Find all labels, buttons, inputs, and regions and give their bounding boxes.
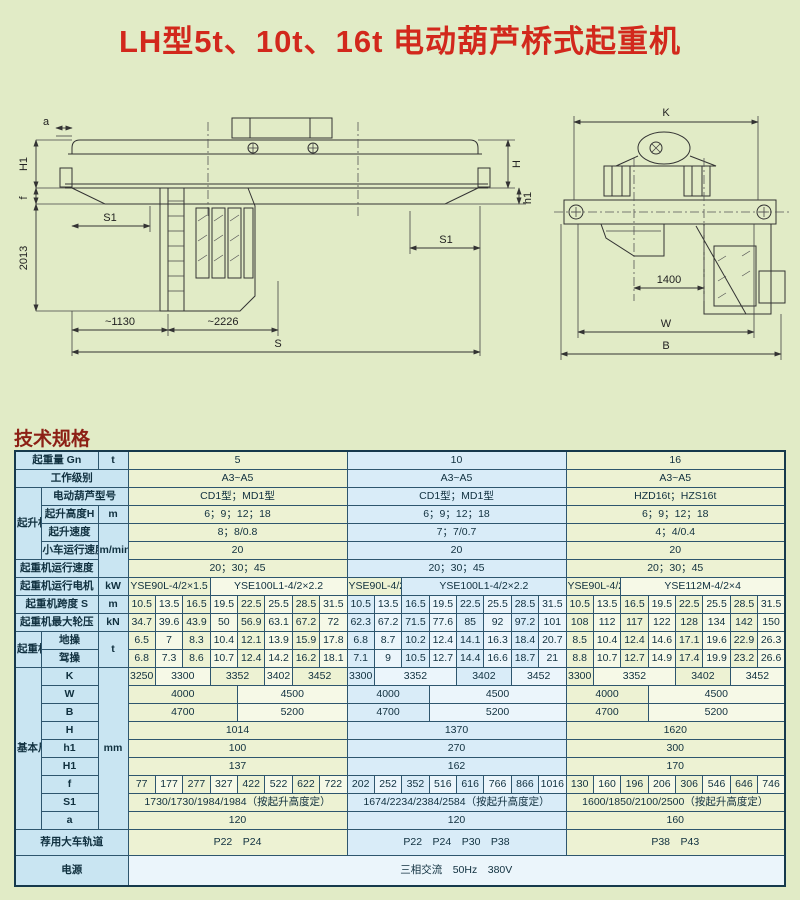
- spec-cell: 16.2: [292, 650, 319, 668]
- spec-cell: 12.1: [238, 632, 265, 650]
- spec-row: a120120160: [15, 812, 785, 830]
- spec-cell: 130: [566, 776, 593, 794]
- spec-cell: 10.5: [402, 650, 429, 668]
- spec-cell: 23.2: [730, 650, 757, 668]
- spec-cell: 20: [128, 542, 347, 560]
- spec-cell: 8.3: [183, 632, 210, 650]
- spec-cell: 327: [210, 776, 237, 794]
- spec-cell: 起升速度: [41, 524, 98, 542]
- spec-row: B470052004700520047005200: [15, 704, 785, 722]
- spec-cell: 10: [347, 451, 566, 470]
- spec-cell: 16.6: [484, 650, 511, 668]
- spec-cell: 101: [539, 614, 566, 632]
- spec-cell: 170: [566, 758, 785, 776]
- spec-cell: 16.5: [621, 596, 648, 614]
- spec-cell: 3300: [155, 668, 210, 686]
- spec-cell: 4700: [566, 704, 648, 722]
- spec-row: 起重机跨度 Sm10.513.516.519.522.525.528.531.5…: [15, 596, 785, 614]
- spec-cell: 20；30；45: [128, 560, 347, 578]
- spec-cell: 3452: [292, 668, 347, 686]
- spec-cell: 3452: [511, 668, 566, 686]
- spec-cell: 12.4: [429, 632, 456, 650]
- spec-cell: 5200: [648, 704, 785, 722]
- spec-cell: 19.9: [703, 650, 730, 668]
- spec-table: 起重量 Gnt51016工作级别A3~A5A3~A5A3~A5起升机构电动葫芦型…: [14, 450, 786, 887]
- spec-cell: 19.5: [210, 596, 237, 614]
- spec-row: 起重机运行速度20；30；4520；30；4520；30；45: [15, 560, 785, 578]
- spec-cell: 13.5: [155, 596, 182, 614]
- dimension-lines: a H1 f 2013 S1 ~1130 ~2226 S H h1 S1: [18, 116, 534, 356]
- spec-cell: 电源: [15, 856, 128, 887]
- spec-cell: 地操: [41, 632, 98, 650]
- spec-cell: 电动葫芦型号: [41, 488, 128, 506]
- spec-cell: t: [98, 451, 128, 470]
- spec-cell: 4700: [128, 704, 238, 722]
- dim-label-2226: ~2226: [208, 316, 239, 328]
- dim-label-K: K: [662, 107, 670, 119]
- spec-row: 驾操6.87.38.610.712.414.216.218.17.1910.51…: [15, 650, 785, 668]
- spec-cell: 22.5: [676, 596, 703, 614]
- spec-cell: 1600/1850/2100/2500（按起升高度定）: [566, 794, 785, 812]
- spec-cell: 14.4: [457, 650, 484, 668]
- spec-cell: 7: [155, 632, 182, 650]
- spec-cell: 10.5: [347, 596, 374, 614]
- spec-cell: 43.9: [183, 614, 210, 632]
- spec-cell: 766: [484, 776, 511, 794]
- spec-cell: 6；9；12；18: [347, 506, 566, 524]
- spec-cell: 12.7: [621, 650, 648, 668]
- cab-and-ladder: [160, 188, 255, 311]
- spec-cell: YSE100L1-4/2×2.2: [402, 578, 566, 596]
- spec-cell: 150: [758, 614, 785, 632]
- spec-cell: 63.1: [265, 614, 292, 632]
- spec-cell: 起重机运行电机: [15, 578, 98, 596]
- spec-cell: 7；7/0.7: [347, 524, 566, 542]
- crane-end-view-drawing: K 1400 W B: [546, 96, 800, 374]
- spec-cell: 160: [566, 812, 785, 830]
- spec-cell: 28.5: [511, 596, 538, 614]
- dim-label-S1-right: S1: [439, 234, 452, 246]
- spec-cell: 3402: [457, 668, 512, 686]
- dimension-lines: K 1400 W B: [561, 107, 781, 360]
- spec-cell: 18.4: [511, 632, 538, 650]
- spec-cell: a: [41, 812, 98, 830]
- spec-cell: 14.6: [648, 632, 675, 650]
- spec-cell: 6；9；12；18: [128, 506, 347, 524]
- spec-cell: 3300: [566, 668, 593, 686]
- spec-cell: H1: [41, 758, 98, 776]
- spec-row: 起升速度m/min8；8/0.87；7/0.74；4/0.4: [15, 524, 785, 542]
- spec-cell: 8.8: [566, 650, 593, 668]
- spec-cell: P22 P24: [128, 830, 347, 856]
- spec-cell: f: [41, 776, 98, 794]
- spec-cell: 516: [429, 776, 456, 794]
- spec-cell: 20；30；45: [566, 560, 785, 578]
- spec-cell: 8；8/0.8: [128, 524, 347, 542]
- spec-cell: 252: [374, 776, 401, 794]
- spec-cell: W: [41, 686, 98, 704]
- spec-row: 起重机运行电机kWYSE90L-4/2×1.5YSE100L1-4/2×2.2Y…: [15, 578, 785, 596]
- spec-cell: K: [41, 668, 98, 686]
- spec-cell: 39.6: [155, 614, 182, 632]
- spec-cell: 3452: [730, 668, 785, 686]
- spec-row: h1100270300: [15, 740, 785, 758]
- spec-cell: 12.4: [621, 632, 648, 650]
- spec-cell: 3352: [593, 668, 675, 686]
- spec-cell: A3~A5: [128, 470, 347, 488]
- spec-cell: 6.8: [347, 632, 374, 650]
- spec-cell: 31.5: [758, 596, 785, 614]
- spec-cell: 300: [566, 740, 785, 758]
- spec-cell: 1730/1730/1984/1984（按起升高度定）: [128, 794, 347, 812]
- spec-cell: 10.5: [566, 596, 593, 614]
- spec-cell: 72: [320, 614, 347, 632]
- spec-table-body: 起重量 Gnt51016工作级别A3~A5A3~A5A3~A5起升机构电动葫芦型…: [15, 451, 785, 886]
- spec-cell: t: [98, 632, 128, 668]
- spec-cell: 14.1: [457, 632, 484, 650]
- spec-cell: 25.5: [484, 596, 511, 614]
- spec-cell: P38 P43: [566, 830, 785, 856]
- spec-cell: 起重量 Gn: [15, 451, 98, 470]
- spec-cell: kN: [98, 614, 128, 632]
- spec-cell: 746: [758, 776, 785, 794]
- spec-cell: 100: [128, 740, 347, 758]
- spec-cell: 荐用大车轨道: [15, 830, 128, 856]
- spec-row: 荐用大车轨道P22 P24P22 P24 P30 P38P38 P43: [15, 830, 785, 856]
- spec-cell: kW: [98, 578, 128, 596]
- spec-cell: 13.9: [265, 632, 292, 650]
- spec-cell: 10.5: [128, 596, 155, 614]
- spec-cell: 6.8: [128, 650, 155, 668]
- spec-cell: 177: [155, 776, 182, 794]
- spec-cell: 10.7: [593, 650, 620, 668]
- spec-cell: P22 P24 P30 P38: [347, 830, 566, 856]
- spec-cell: 62.3: [347, 614, 374, 632]
- spec-cell: mm: [98, 668, 128, 830]
- spec-row: H1137162170: [15, 758, 785, 776]
- dim-label-B: B: [662, 340, 669, 352]
- trolley-hoist: [224, 118, 340, 153]
- spec-cell: H: [41, 722, 98, 740]
- page-title: LH型5t、10t、16t 电动葫芦桥式起重机: [0, 16, 800, 61]
- spec-cell: 15.9: [292, 632, 319, 650]
- spec-cell: 20: [566, 542, 785, 560]
- spec-cell: 142: [730, 614, 757, 632]
- spec-cell: 起重机最大轮压: [15, 614, 98, 632]
- spec-cell: 10.7: [210, 650, 237, 668]
- spec-row: 电源三相交流 50Hz 380V: [15, 856, 785, 887]
- spec-cell: 160: [593, 776, 620, 794]
- spec-cell: 8.6: [183, 650, 210, 668]
- spec-cell: 10.2: [402, 632, 429, 650]
- spec-cell: 20；30；45: [347, 560, 566, 578]
- spec-cell: 4500: [648, 686, 785, 704]
- end-view-structure: [554, 132, 792, 314]
- spec-cell: 67.2: [374, 614, 401, 632]
- spec-cell: A3~A5: [566, 470, 785, 488]
- spec-cell: 22.9: [730, 632, 757, 650]
- spec-cell: YSE90L-4/2×1.5: [566, 578, 621, 596]
- crane-side-view-drawing: a H1 f 2013 S1 ~1130 ~2226 S H h1 S1: [10, 106, 538, 368]
- spec-cell: 352: [402, 776, 429, 794]
- spec-cell: 270: [347, 740, 566, 758]
- spec-row: 小车运行速度202020: [15, 542, 785, 560]
- spec-cell: 546: [703, 776, 730, 794]
- spec-cell: 17.8: [320, 632, 347, 650]
- spec-cell: 28.5: [730, 596, 757, 614]
- spec-cell: 77.6: [429, 614, 456, 632]
- spec-cell: 67.2: [292, 614, 319, 632]
- section-heading: 技术规格: [14, 424, 90, 451]
- dim-label-1130: ~1130: [105, 316, 135, 328]
- spec-row: f771772773274225226227222022523525166167…: [15, 776, 785, 794]
- spec-cell: 4500: [238, 686, 348, 704]
- catalog-page: { "page": { "title": "LH型5t、10t、16t 电动葫芦…: [0, 0, 800, 900]
- spec-cell: 306: [676, 776, 703, 794]
- spec-cell: CD1型；MD1型: [347, 488, 566, 506]
- spec-cell: 4500: [429, 686, 566, 704]
- spec-cell: 起重机运行速度: [15, 560, 98, 578]
- spec-row: 起升机构电动葫芦型号CD1型；MD1型CD1型；MD1型HZD16t；HZS16…: [15, 488, 785, 506]
- spec-cell: 1370: [347, 722, 566, 740]
- dim-label-a: a: [43, 116, 50, 128]
- spec-cell: 3402: [265, 668, 292, 686]
- spec-cell: YSE90L-4/2×1.5: [128, 578, 210, 596]
- spec-cell: 3250: [128, 668, 155, 686]
- spec-cell: 19.5: [429, 596, 456, 614]
- spec-cell: 16.3: [484, 632, 511, 650]
- spec-cell: 21: [539, 650, 566, 668]
- spec-cell: 202: [347, 776, 374, 794]
- spec-cell: 25.5: [703, 596, 730, 614]
- spec-cell: 22.5: [238, 596, 265, 614]
- spec-cell: 1674/2234/2384/2584（按起升高度定）: [347, 794, 566, 812]
- spec-cell: 122: [648, 614, 675, 632]
- dim-label-S: S: [274, 338, 281, 350]
- spec-cell: 616: [457, 776, 484, 794]
- spec-row: 工作级别A3~A5A3~A5A3~A5: [15, 470, 785, 488]
- spec-cell: 基本尺寸: [15, 668, 41, 830]
- spec-cell: 12.7: [429, 650, 456, 668]
- dim-label-1400: 1400: [657, 274, 681, 286]
- spec-cell: 120: [347, 812, 566, 830]
- spec-row: 基本尺寸Kmm325033003352340234523300335234023…: [15, 668, 785, 686]
- spec-cell: 117: [621, 614, 648, 632]
- spec-cell: 起升机构: [15, 488, 41, 560]
- spec-cell: 7.1: [347, 650, 374, 668]
- spec-cell: 小车运行速度: [41, 542, 98, 560]
- spec-cell: 8.5: [566, 632, 593, 650]
- spec-cell: 50: [210, 614, 237, 632]
- spec-cell: 20.7: [539, 632, 566, 650]
- spec-row: H101413701620: [15, 722, 785, 740]
- spec-cell: 19.6: [703, 632, 730, 650]
- dim-label-H1: H1: [18, 157, 30, 171]
- spec-cell: 31.5: [539, 596, 566, 614]
- spec-cell: 13.5: [374, 596, 401, 614]
- spec-cell: 起重机总重: [15, 632, 41, 668]
- spec-cell: 128: [676, 614, 703, 632]
- spec-cell: 4000: [128, 686, 238, 704]
- spec-cell: 722: [320, 776, 347, 794]
- spec-cell: 10.4: [210, 632, 237, 650]
- spec-cell: 1016: [539, 776, 566, 794]
- spec-cell: 196: [621, 776, 648, 794]
- dim-label-W: W: [661, 318, 672, 330]
- spec-cell: 18.7: [511, 650, 538, 668]
- spec-cell: 522: [265, 776, 292, 794]
- spec-cell: 5200: [238, 704, 348, 722]
- spec-cell: 16.5: [402, 596, 429, 614]
- dim-label-2013: 2013: [18, 246, 30, 270]
- dim-label-f: f: [18, 196, 30, 200]
- spec-cell: m/min: [98, 524, 128, 578]
- spec-row: 起重机最大轮压kN34.739.643.95056.963.167.27262.…: [15, 614, 785, 632]
- spec-cell: 4000: [347, 686, 429, 704]
- spec-cell: 1014: [128, 722, 347, 740]
- spec-cell: 20: [347, 542, 566, 560]
- spec-row: 起重机总重地操t6.578.310.412.113.915.917.86.88.…: [15, 632, 785, 650]
- spec-cell: 120: [128, 812, 347, 830]
- spec-row: 起重量 Gnt51016: [15, 451, 785, 470]
- spec-cell: 422: [238, 776, 265, 794]
- spec-cell: 866: [511, 776, 538, 794]
- spec-cell: 108: [566, 614, 593, 632]
- spec-cell: 77: [128, 776, 155, 794]
- spec-cell: 1620: [566, 722, 785, 740]
- spec-cell: 9: [374, 650, 401, 668]
- spec-cell: 92: [484, 614, 511, 632]
- spec-cell: YSE100L1-4/2×2.2: [210, 578, 347, 596]
- spec-cell: 12.4: [238, 650, 265, 668]
- spec-cell: 3352: [374, 668, 456, 686]
- spec-cell: S1: [41, 794, 98, 812]
- spec-cell: 34.7: [128, 614, 155, 632]
- spec-cell: 10.4: [593, 632, 620, 650]
- spec-cell: 25.5: [265, 596, 292, 614]
- spec-cell: HZD16t；HZS16t: [566, 488, 785, 506]
- spec-cell: 19.5: [648, 596, 675, 614]
- spec-cell: 起升高度H: [41, 506, 98, 524]
- spec-cell: 162: [347, 758, 566, 776]
- spec-cell: YSE90L-4/2×1.5: [347, 578, 402, 596]
- girder-outline: [60, 122, 490, 218]
- spec-cell: 3402: [676, 668, 731, 686]
- dim-label-H: H: [511, 160, 523, 168]
- spec-cell: 4700: [347, 704, 429, 722]
- spec-cell: 31.5: [320, 596, 347, 614]
- spec-cell: 13.5: [593, 596, 620, 614]
- spec-cell: YSE112M-4/2×4: [621, 578, 785, 596]
- spec-cell: 646: [730, 776, 757, 794]
- spec-cell: 18.1: [320, 650, 347, 668]
- spec-cell: 277: [183, 776, 210, 794]
- spec-cell: 工作级别: [15, 470, 128, 488]
- spec-cell: CD1型；MD1型: [128, 488, 347, 506]
- spec-cell: 5200: [429, 704, 566, 722]
- spec-cell: 85: [457, 614, 484, 632]
- spec-cell: 71.5: [402, 614, 429, 632]
- spec-cell: 14.2: [265, 650, 292, 668]
- spec-cell: 6；9；12；18: [566, 506, 785, 524]
- spec-cell: 7.3: [155, 650, 182, 668]
- spec-cell: 3352: [210, 668, 265, 686]
- spec-cell: m: [98, 506, 128, 524]
- spec-cell: 17.1: [676, 632, 703, 650]
- spec-row: W400045004000450040004500: [15, 686, 785, 704]
- spec-cell: 26.3: [758, 632, 785, 650]
- spec-cell: 28.5: [292, 596, 319, 614]
- spec-cell: 驾操: [41, 650, 98, 668]
- spec-cell: 8.7: [374, 632, 401, 650]
- spec-cell: 4000: [566, 686, 648, 704]
- spec-cell: 4；4/0.4: [566, 524, 785, 542]
- spec-cell: 3300: [347, 668, 374, 686]
- dim-label-S1-left: S1: [103, 212, 116, 224]
- spec-cell: 206: [648, 776, 675, 794]
- spec-cell: B: [41, 704, 98, 722]
- spec-cell: 56.9: [238, 614, 265, 632]
- spec-cell: 137: [128, 758, 347, 776]
- spec-cell: 5: [128, 451, 347, 470]
- spec-cell: m: [98, 596, 128, 614]
- spec-cell: h1: [41, 740, 98, 758]
- spec-cell: A3~A5: [347, 470, 566, 488]
- spec-cell: 26.6: [758, 650, 785, 668]
- dim-label-h1: h1: [522, 192, 534, 204]
- spec-cell: 14.9: [648, 650, 675, 668]
- spec-row: S11730/1730/1984/1984（按起升高度定）1674/2234/2…: [15, 794, 785, 812]
- spec-cell: 134: [703, 614, 730, 632]
- spec-cell: 6.5: [128, 632, 155, 650]
- spec-cell: 97.2: [511, 614, 538, 632]
- spec-cell: 112: [593, 614, 620, 632]
- spec-cell: 三相交流 50Hz 380V: [128, 856, 785, 887]
- spec-cell: 16: [566, 451, 785, 470]
- spec-cell: 起重机跨度 S: [15, 596, 98, 614]
- spec-cell: 22.5: [457, 596, 484, 614]
- spec-row: 起升高度Hm6；9；12；186；9；12；186；9；12；18: [15, 506, 785, 524]
- spec-cell: 17.4: [676, 650, 703, 668]
- spec-cell: 16.5: [183, 596, 210, 614]
- spec-cell: 622: [292, 776, 319, 794]
